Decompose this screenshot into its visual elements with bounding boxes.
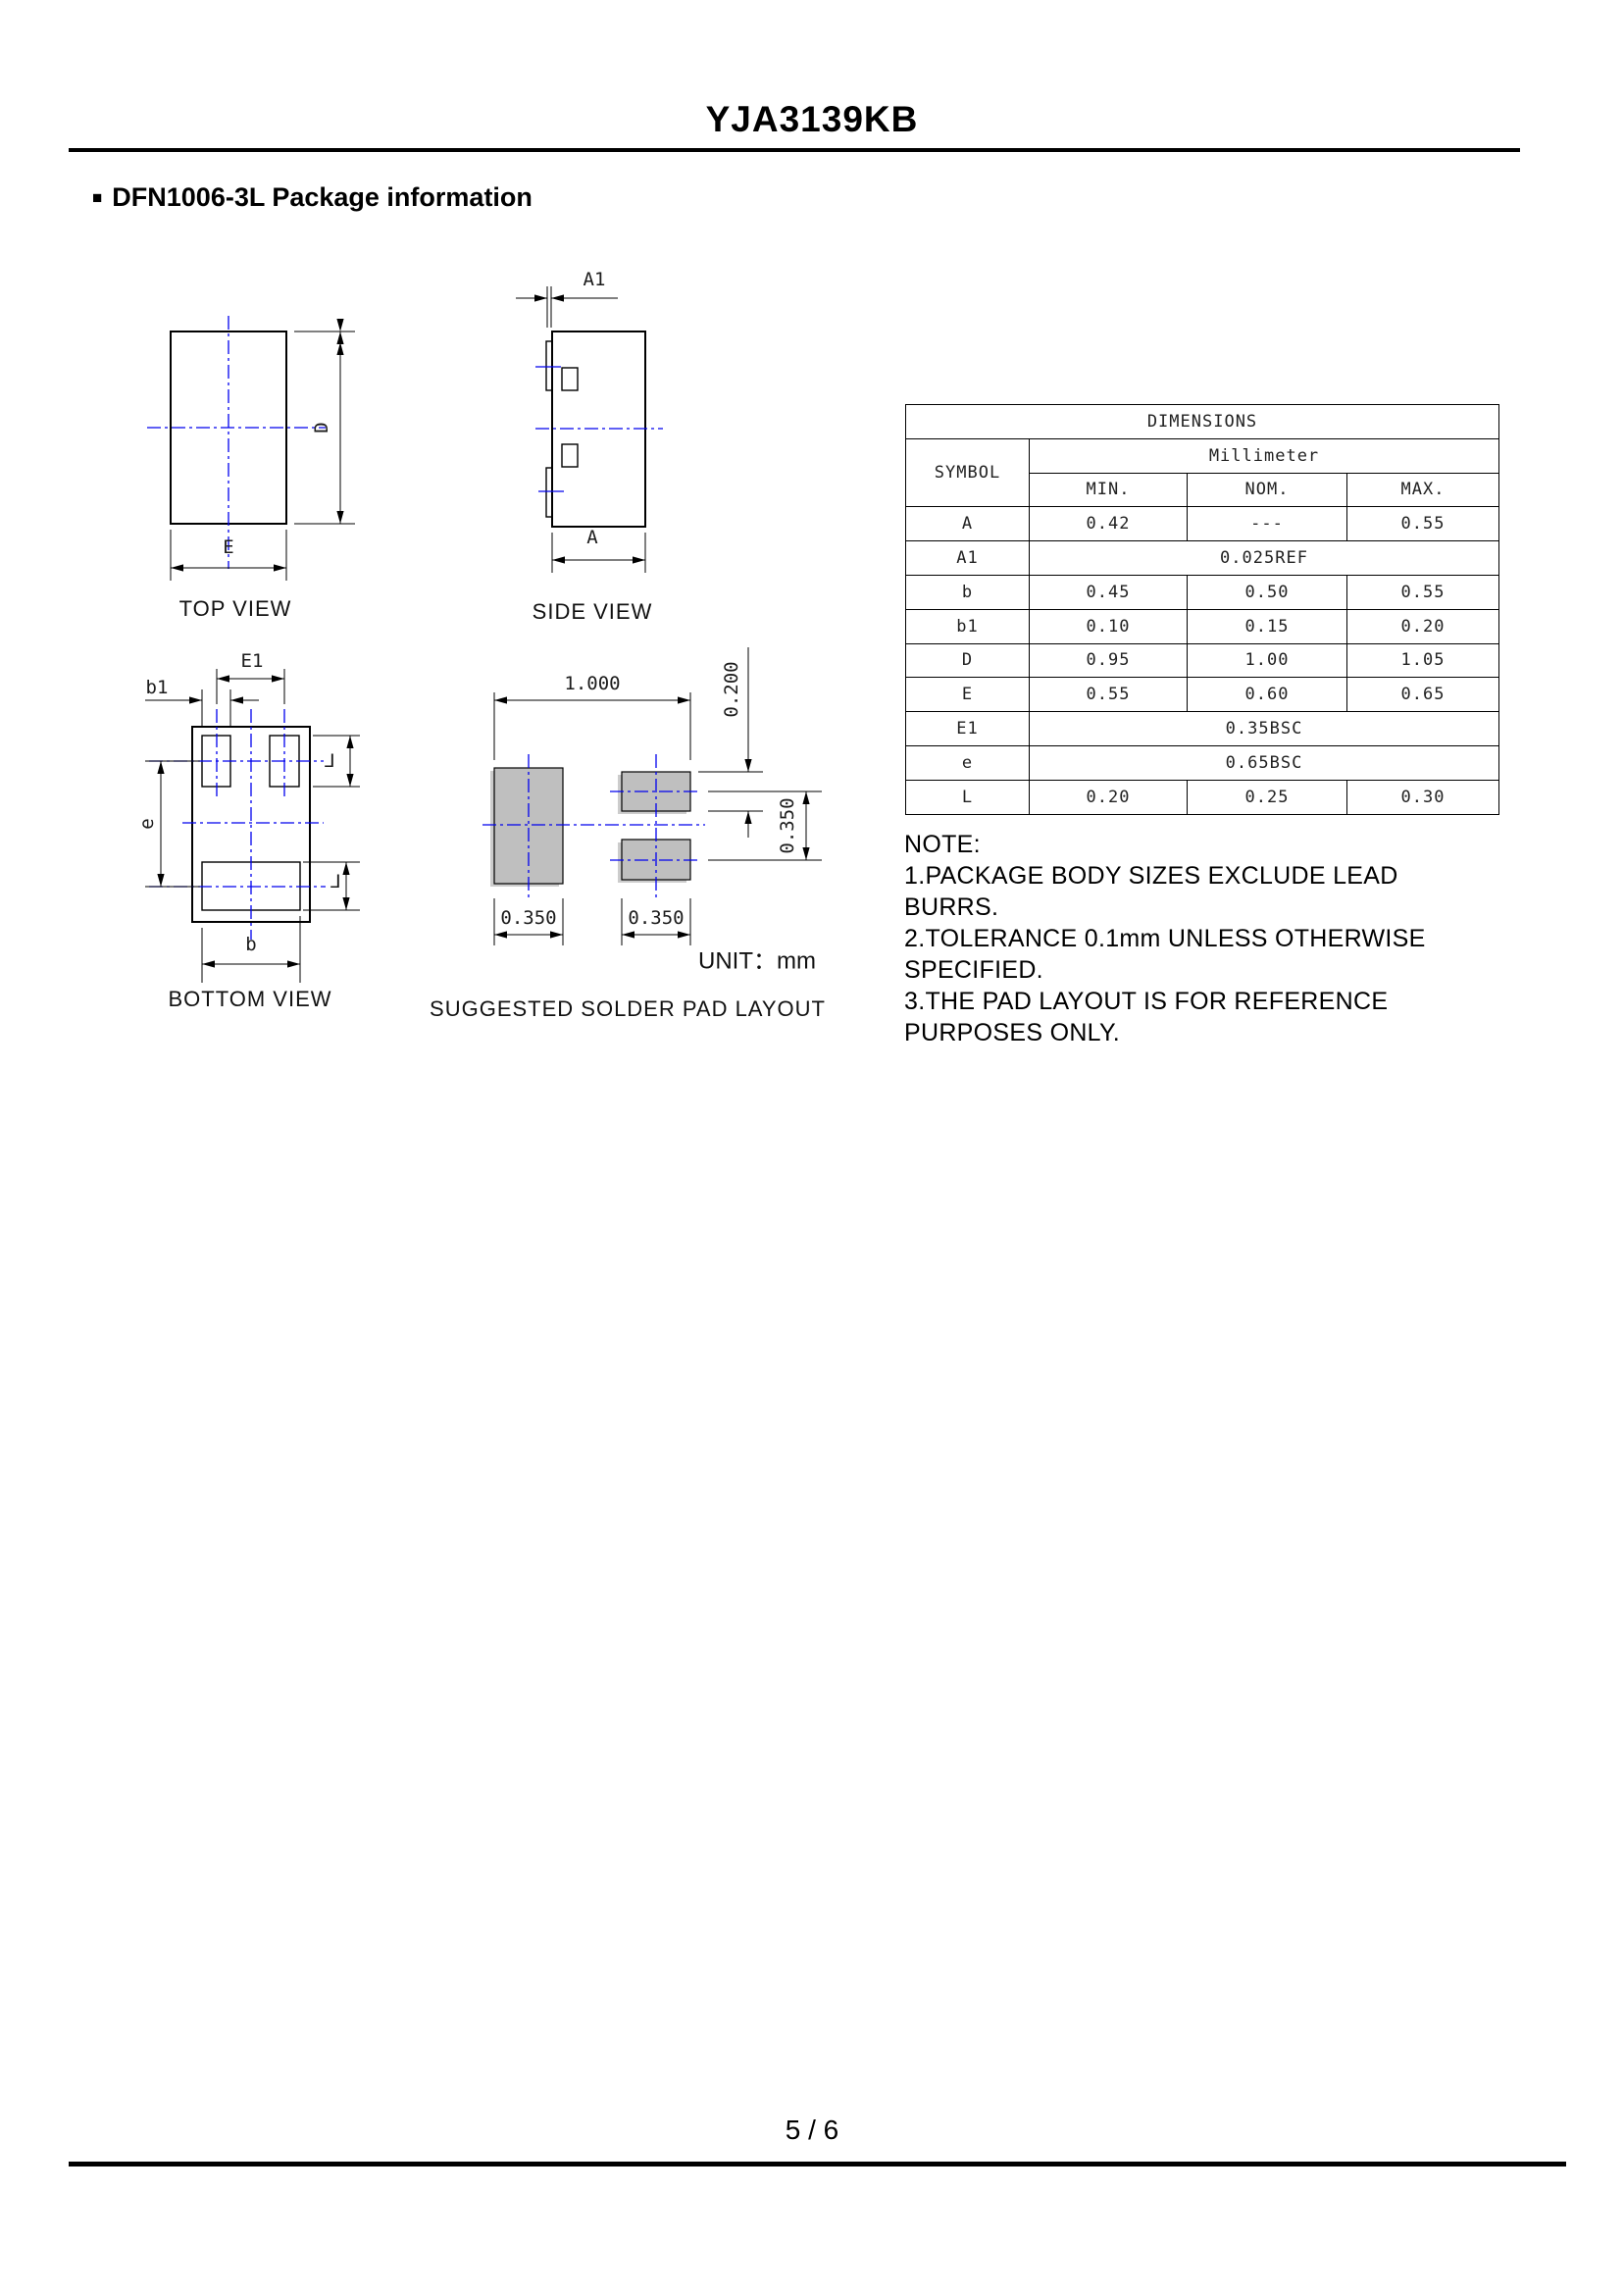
dim-label-0.350-pitch: 0.350 [777, 797, 798, 853]
dimensions-table: DIMENSIONS SYMBOL Millimeter MIN. NOM. M… [905, 404, 1499, 815]
table-row: e 0.65BSC [906, 745, 1499, 780]
unit-header: Millimeter [1030, 438, 1499, 473]
note-line: 1.PACKAGE BODY SIZES EXCLUDE LEAD BURRS. [904, 860, 1434, 923]
package-drawings [0, 0, 902, 1079]
note-line: PURPOSES ONLY. [904, 1017, 1434, 1048]
dim-label-0.200: 0.200 [721, 661, 742, 717]
side-view-label: SIDE VIEW [533, 599, 653, 625]
dim-label-0.350-right: 0.350 [628, 907, 684, 929]
table-row: A1 0.025REF [906, 541, 1499, 576]
dim-label-L-bottom: L [330, 871, 340, 892]
top-view-drawing [147, 316, 355, 581]
dim-label-E1: E1 [241, 650, 264, 672]
page-number: 5 / 6 [786, 2115, 838, 2146]
dim-label-E: E [223, 536, 233, 558]
dim-label-D: D [311, 422, 332, 433]
note-line: 2.TOLERANCE 0.1mm UNLESS OTHERWISE [904, 923, 1434, 954]
dim-label-1.000: 1.000 [564, 673, 620, 694]
note-line: SPECIFIED. [904, 954, 1434, 986]
col-header-max: MAX. [1347, 473, 1499, 507]
table-row: A 0.42 --- 0.55 [906, 507, 1499, 541]
table-row: E 0.55 0.60 0.65 [906, 678, 1499, 712]
dim-label-0.350-left: 0.350 [500, 907, 556, 929]
table-title-row: DIMENSIONS [906, 405, 1499, 439]
table-row: L 0.20 0.25 0.30 [906, 780, 1499, 814]
datasheet-page: YJA3139KB ■ DFN1006-3L Package informati… [0, 0, 1624, 2294]
pad-layout-label: SUGGESTED SOLDER PAD LAYOUT [430, 996, 826, 1022]
table-row: b 0.45 0.50 0.55 [906, 575, 1499, 609]
symbol-header: SYMBOL [906, 438, 1030, 507]
dim-label-b1: b1 [146, 677, 169, 698]
note-line: 3.THE PAD LAYOUT IS FOR REFERENCE [904, 986, 1434, 1017]
unit-label: UNIT：mm [698, 942, 816, 976]
dim-label-b: b [245, 934, 256, 955]
note-block: NOTE: 1.PACKAGE BODY SIZES EXCLUDE LEAD … [904, 829, 1434, 1048]
table-unit-row: SYMBOL Millimeter [906, 438, 1499, 473]
col-header-nom: NOM. [1188, 473, 1347, 507]
dim-label-A: A [586, 527, 597, 548]
solder-pad-layout-drawing [482, 647, 822, 945]
top-view-label: TOP VIEW [179, 596, 292, 622]
col-header-min: MIN. [1030, 473, 1188, 507]
table-title: DIMENSIONS [906, 405, 1499, 439]
dim-label-L-top: L [324, 750, 334, 772]
dim-label-e: e [136, 818, 158, 829]
table-row: E1 0.35BSC [906, 712, 1499, 746]
footer-rule [69, 2162, 1566, 2167]
note-heading: NOTE: [904, 829, 1434, 860]
dim-label-A1: A1 [584, 269, 606, 290]
bottom-view-label: BOTTOM VIEW [168, 987, 331, 1012]
table-row: D 0.95 1.00 1.05 [906, 643, 1499, 678]
table-row: b1 0.10 0.15 0.20 [906, 609, 1499, 643]
